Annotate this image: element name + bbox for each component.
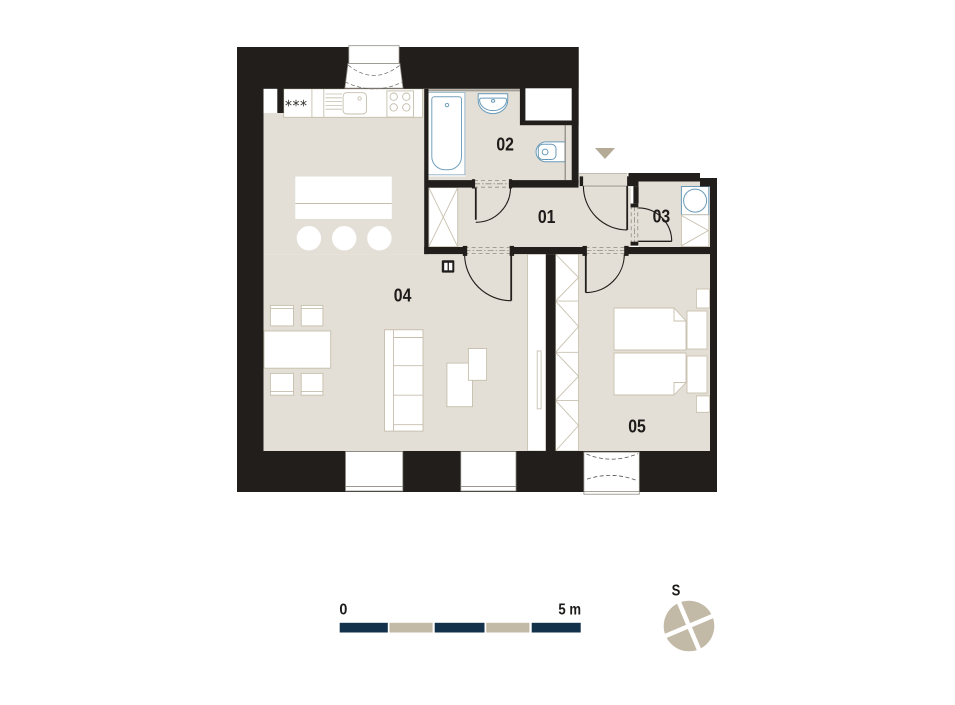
svg-text:S: S bbox=[672, 583, 681, 600]
svg-text:03: 03 bbox=[653, 206, 671, 226]
svg-text:02: 02 bbox=[496, 135, 514, 155]
svg-text:04: 04 bbox=[394, 286, 412, 306]
svg-text:0: 0 bbox=[339, 601, 347, 618]
svg-text:05: 05 bbox=[628, 417, 646, 437]
svg-text:01: 01 bbox=[538, 207, 556, 227]
svg-text:5 m: 5 m bbox=[558, 601, 581, 618]
